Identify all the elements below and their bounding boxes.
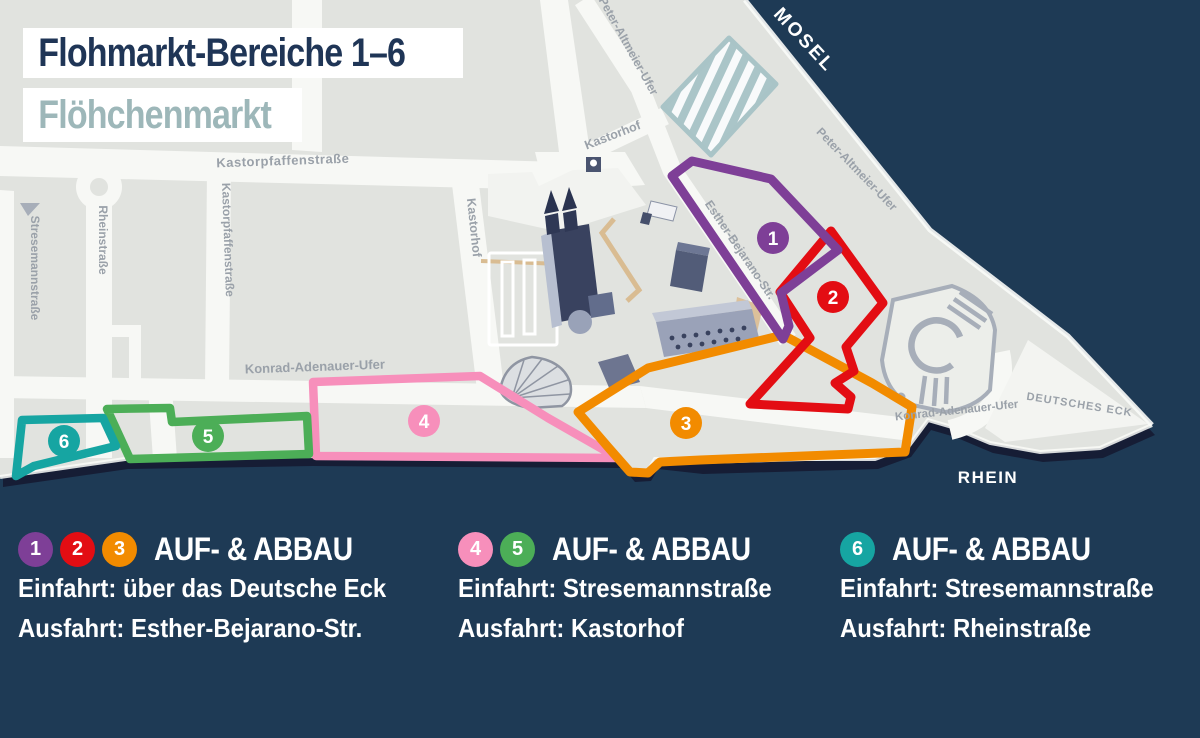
legend-exit: Ausfahrt: Rheinstraße bbox=[840, 608, 1154, 648]
roundabout-center bbox=[90, 178, 108, 196]
legend-entry: Einfahrt: Stresemannstraße bbox=[840, 568, 1154, 608]
legend-exit: Ausfahrt: Kastorhof bbox=[458, 608, 772, 648]
church-transept bbox=[588, 292, 615, 318]
page-title: Flohmarkt-Bereiche 1–6 bbox=[23, 31, 405, 76]
info-board-icon bbox=[586, 157, 601, 172]
svg-text:3: 3 bbox=[681, 414, 692, 435]
legend-title: AUF- & ABBAU bbox=[892, 531, 1091, 568]
svg-text:1: 1 bbox=[768, 229, 779, 250]
street-stresemannstrasse bbox=[0, 190, 14, 458]
legend-badge-6: 6 bbox=[840, 532, 875, 567]
legend-row: 6 AUF- & ABBAU bbox=[840, 530, 1181, 568]
map-badge-1: 1 bbox=[757, 222, 789, 254]
church-tower-1 bbox=[545, 213, 560, 235]
flea-market-map-poster: 1 2 3 4 5 6 Kastorpfaffenstraße Stresema… bbox=[0, 0, 1200, 738]
page-subtitle-box: Flöhchenmarkt bbox=[23, 88, 302, 142]
church-apse bbox=[568, 310, 592, 334]
map-badge-4: 4 bbox=[408, 405, 440, 437]
label-rhein: RHEIN bbox=[958, 468, 1018, 487]
deutsches-eck-monument bbox=[882, 286, 995, 412]
svg-text:6: 6 bbox=[59, 432, 70, 453]
church-tower-2 bbox=[563, 210, 578, 232]
legend-title: AUF- & ABBAU bbox=[154, 531, 353, 568]
legend-badge-2: 2 bbox=[60, 532, 95, 567]
legend: 1 2 3 AUF- & ABBAU Einfahrt: über das De… bbox=[0, 530, 1200, 738]
legend-title: AUF- & ABBAU bbox=[552, 531, 751, 568]
map-badge-2: 2 bbox=[817, 281, 849, 313]
map-badge-5: 5 bbox=[192, 420, 224, 452]
legend-badge-5: 5 bbox=[500, 532, 535, 567]
legend-badge-1: 1 bbox=[18, 532, 53, 567]
map-badge-3: 3 bbox=[670, 407, 702, 439]
label-stresemannstrasse: Stresemannstraße bbox=[28, 216, 42, 321]
legend-badge-4: 4 bbox=[458, 532, 493, 567]
legend-badge-3: 3 bbox=[102, 532, 137, 567]
map-badge-6: 6 bbox=[48, 425, 80, 457]
label-rheinstrasse: Rheinstraße bbox=[96, 205, 110, 275]
legend-row: 4 5 AUF- & ABBAU bbox=[458, 530, 799, 568]
legend-exit: Ausfahrt: Esther-Bejarano-Str. bbox=[18, 608, 386, 648]
page-title-box: Flohmarkt-Bereiche 1–6 bbox=[23, 28, 463, 78]
legend-group-6: 6 AUF- & ABBAU Einfahrt: Stresemannstraß… bbox=[840, 530, 1181, 648]
page-subtitle: Flöhchenmarkt bbox=[23, 93, 271, 138]
legend-row: 1 2 3 AUF- & ABBAU bbox=[18, 530, 418, 568]
legend-group-1-2-3: 1 2 3 AUF- & ABBAU Einfahrt: über das De… bbox=[18, 530, 418, 648]
legend-group-4-5: 4 5 AUF- & ABBAU Einfahrt: Stresemannstr… bbox=[458, 530, 799, 648]
legend-entry: Einfahrt: über das Deutsche Eck bbox=[18, 568, 386, 608]
legend-entry: Einfahrt: Stresemannstraße bbox=[458, 568, 772, 608]
svg-text:4: 4 bbox=[419, 412, 430, 433]
svg-text:5: 5 bbox=[203, 427, 214, 448]
svg-text:2: 2 bbox=[828, 288, 839, 309]
